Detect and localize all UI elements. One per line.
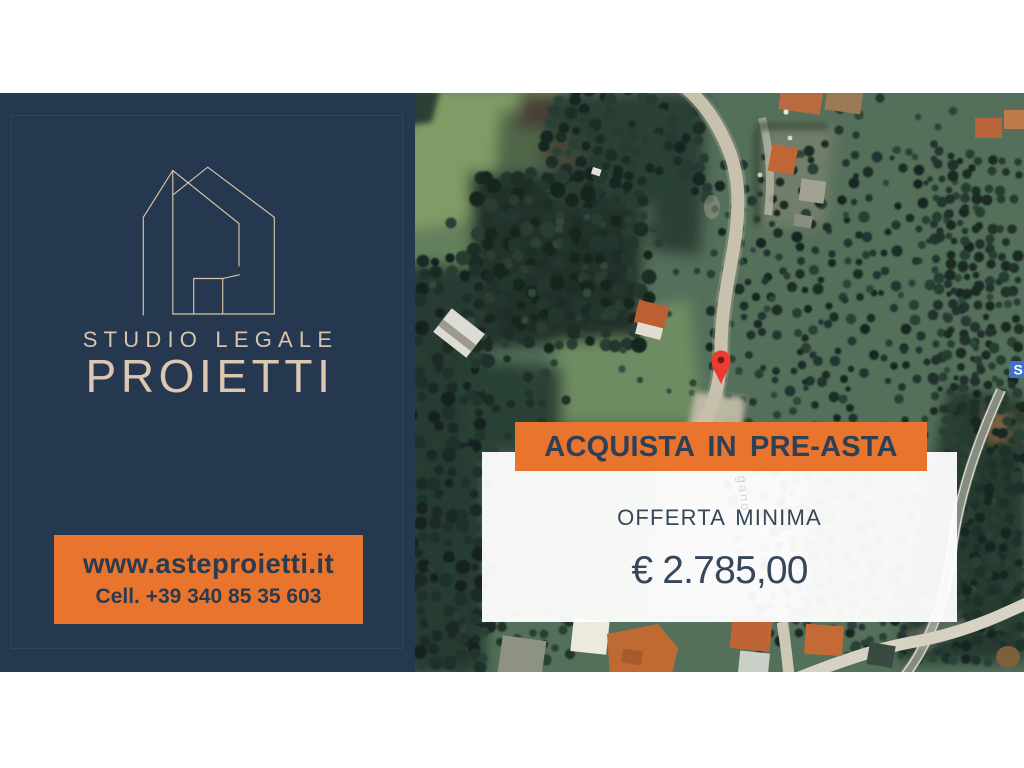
svg-text:S: S <box>1014 362 1023 378</box>
